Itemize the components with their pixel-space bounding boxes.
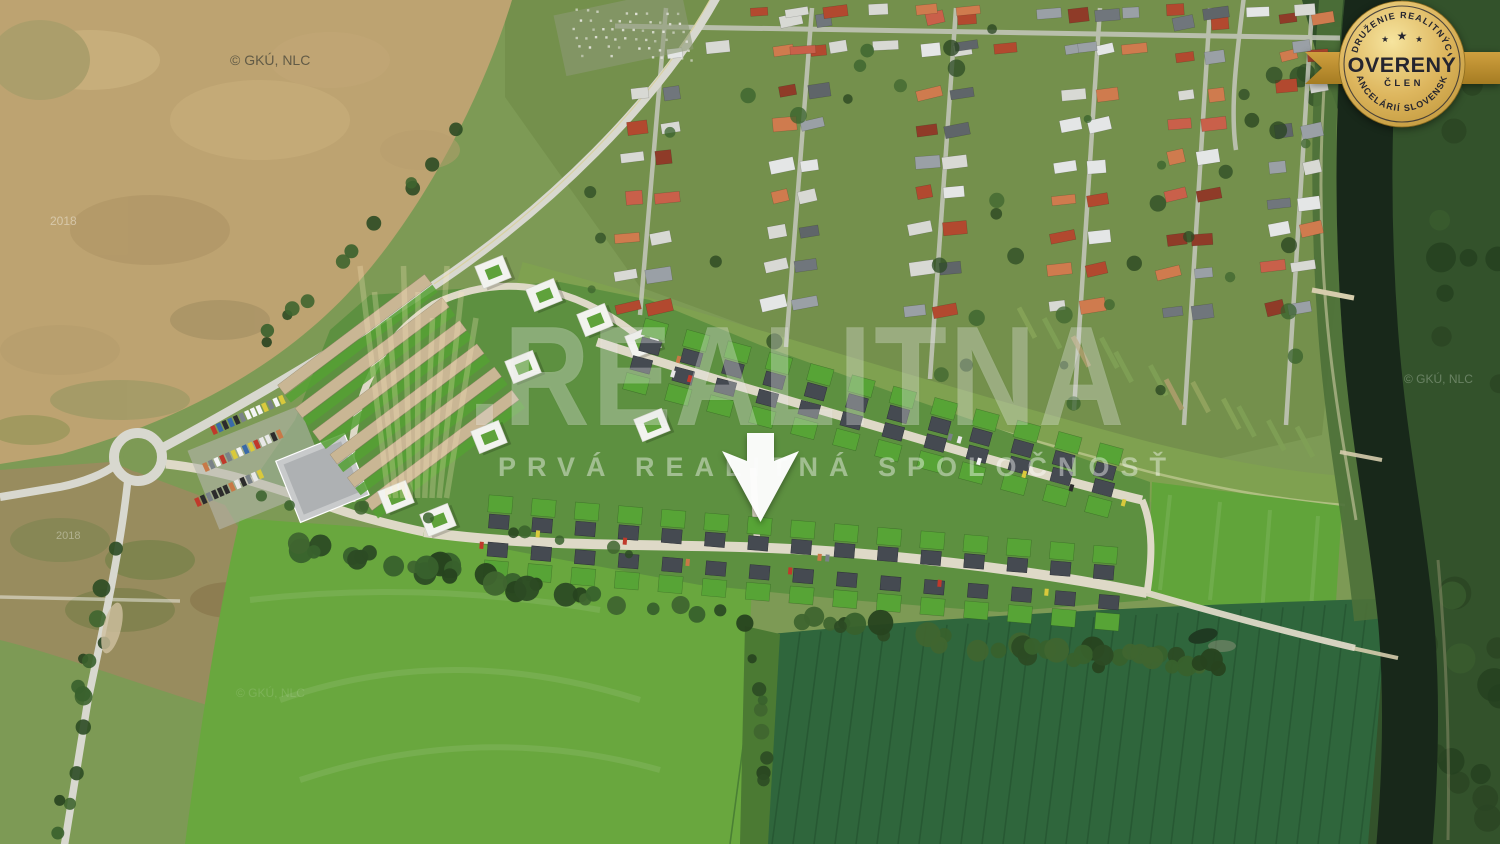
star-icon: ★ (1381, 34, 1389, 44)
star-icon: ★ (1397, 29, 1408, 43)
star-icon: ★ (1415, 34, 1423, 44)
badge-title: OVERENÝ (1348, 52, 1457, 77)
badge-subtitle: ČLEN (1384, 77, 1424, 89)
verified-badge: ZDRUŽENIE REALITNÝCH KANCELÁRIÍ SLOVENSK… (1298, 0, 1500, 136)
terrain-graphic (0, 0, 1500, 844)
aerial-development-photo: .REALITNA PRVÁ REALITNÁ SPOLOČNOSŤ © GKÚ… (0, 0, 1500, 844)
down-arrow-icon (703, 423, 815, 535)
